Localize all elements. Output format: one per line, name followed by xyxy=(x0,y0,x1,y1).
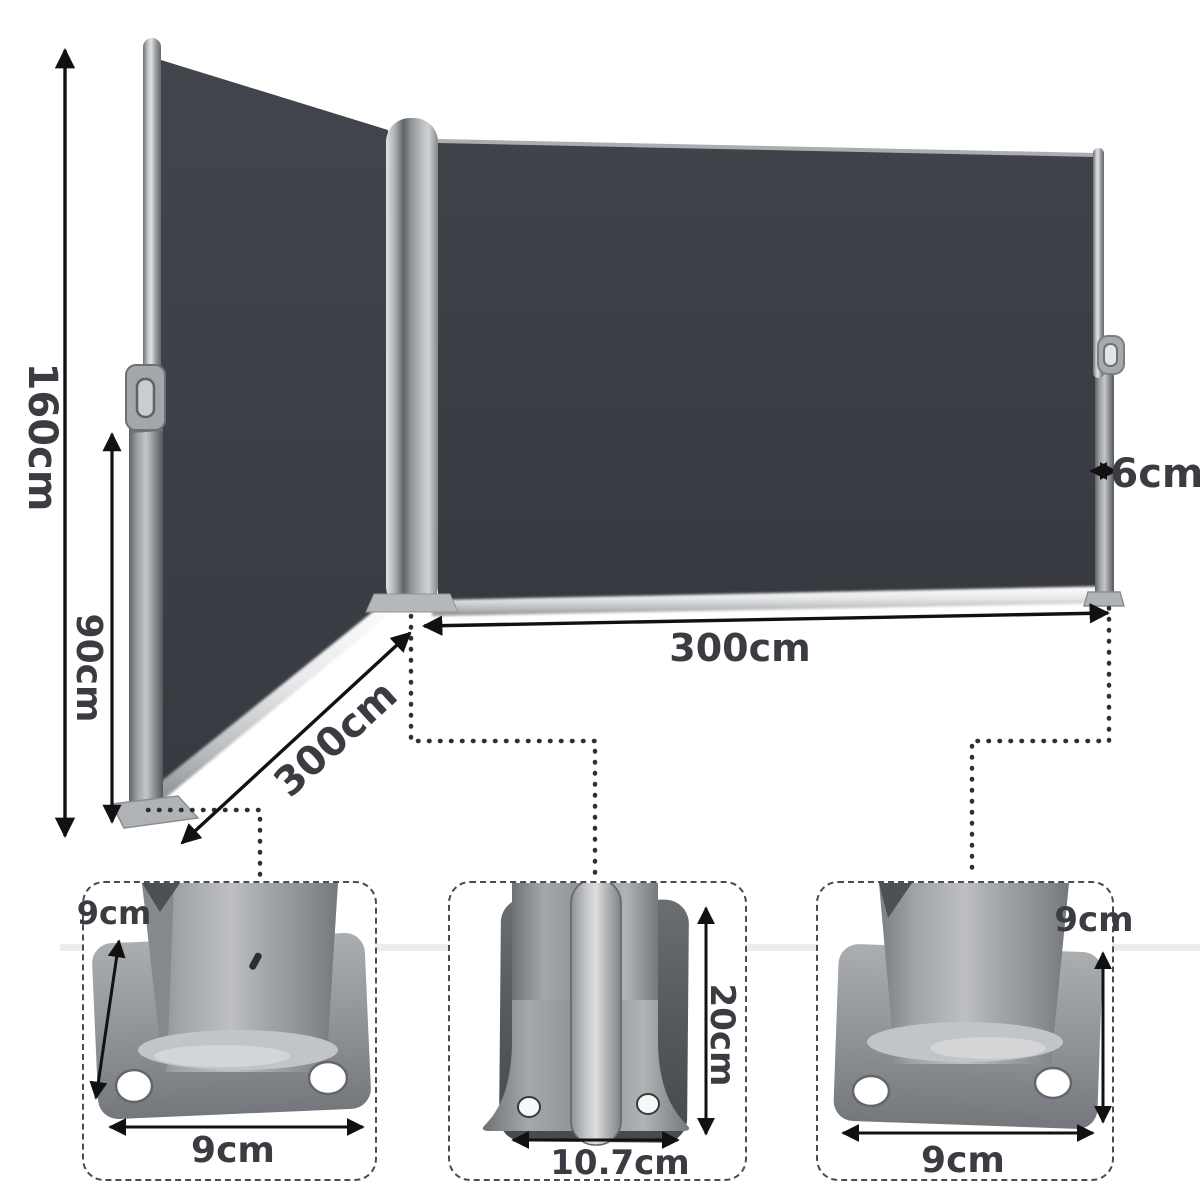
product-dimension-diagram: 160cm 90cm 300cm 300cm 6cm 9cm 9cm 20cm … xyxy=(0,0,1200,1200)
center-base-height-label: 20cm xyxy=(705,984,739,1087)
right-base-width-label: 9cm xyxy=(921,1143,1005,1179)
post-width-label: 6cm xyxy=(1110,454,1200,494)
overall-height-label: 160cm xyxy=(22,363,62,512)
right-post-foot xyxy=(1084,592,1124,606)
left-base-depth-label: 9cm xyxy=(77,897,152,929)
center-post-foot xyxy=(366,594,458,612)
post-height-label: 90cm xyxy=(70,614,106,723)
right-awning-panel xyxy=(432,139,1118,616)
right-panel-length-label: 300cm xyxy=(669,629,810,667)
left-base-width-label: 9cm xyxy=(191,1133,275,1169)
dotted-connector-right xyxy=(972,608,1109,877)
dotted-connector-center xyxy=(411,616,595,877)
right-base-height-label: 9cm xyxy=(1054,903,1133,937)
left-post-foot xyxy=(112,796,198,828)
arrow-right-panel-length xyxy=(424,613,1108,626)
center-base-width-label: 10.7cm xyxy=(550,1146,689,1180)
